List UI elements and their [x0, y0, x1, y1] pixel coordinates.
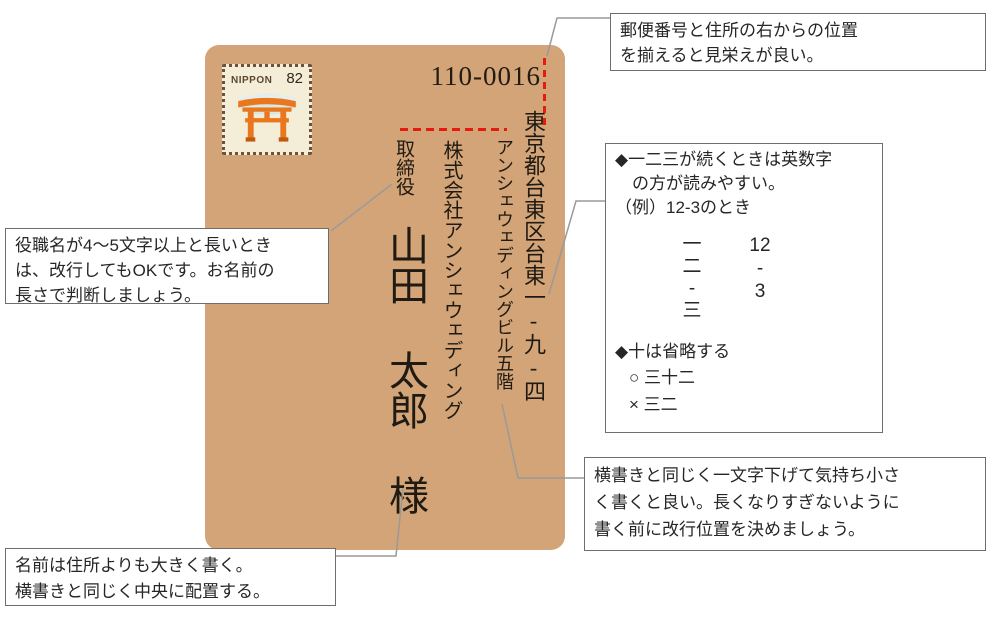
- callout-line: の方が読みやすい。: [615, 172, 873, 196]
- envelope-addressing-diagram: NIPPON 82 110-0016 東京都台東区台東一-九-四 アンシェウェデ…: [0, 0, 1000, 618]
- callout-line: 郵便番号と住所の右からの位置: [620, 18, 976, 43]
- arabic-digit: 12: [749, 234, 770, 257]
- callout-job-title-note: 役職名が4～5文字以上と長いとき は、改行してもOKです。お名前の 長さで判断し…: [5, 228, 329, 304]
- callout-postal-align: 郵便番号と住所の右からの位置 を揃えると見栄えが良い。: [610, 13, 986, 71]
- callout-line: ◆十は省略する: [615, 340, 873, 364]
- callout-line: を揃えると見栄えが良い。: [620, 43, 976, 68]
- kanji-digit: 一: [682, 234, 701, 256]
- callout-line: 長さで判断しましょう。: [15, 283, 319, 308]
- kanji-digit: 二: [682, 256, 701, 278]
- callout-line: 書く前に改行位置を決めましょう。: [594, 516, 976, 543]
- callout-line: （例）12-3のとき: [615, 196, 873, 220]
- stamp: NIPPON 82: [222, 64, 312, 155]
- arabic-digit: -: [757, 257, 763, 280]
- red-guide-horizontal: [400, 128, 507, 131]
- torii-gate-icon: [235, 88, 299, 144]
- callout-line: 横書きと同じく中央に配置する。: [15, 579, 326, 605]
- bad-example-line: × 三二: [615, 391, 873, 418]
- kanji-digit: -: [689, 278, 695, 300]
- callout-line: 横書きと同じく一文字下げて気持ち小さ: [594, 462, 976, 489]
- callout-line: 名前は住所よりも大きく書く。: [15, 553, 326, 579]
- callout-line: ◆一二三が続くときは英数字: [615, 148, 873, 172]
- number-example: 一 二 - 三 12 - 3: [677, 234, 873, 322]
- stamp-header: NIPPON 82: [230, 70, 304, 87]
- company-name: 株式会社アンシェウェディング: [441, 140, 461, 420]
- callout-line: は、改行してもOKです。お名前の: [15, 258, 319, 283]
- callout-line: く書くと良い。長くなりすぎないように: [594, 489, 976, 516]
- callout-building-note: 横書きと同じく一文字下げて気持ち小さ く書くと良い。長くなりすぎないように 書く…: [584, 457, 986, 551]
- stamp-country-label: NIPPON: [231, 75, 272, 86]
- job-title: 取締役: [394, 139, 413, 196]
- good-example-line: ○ 三十二: [615, 364, 873, 391]
- callout-numerals-note: ◆一二三が続くときは英数字 の方が読みやすい。 （例）12-3のとき 一 二 -…: [605, 143, 883, 433]
- address-building: アンシェウェディングビル五階: [495, 138, 513, 390]
- kanji-digit: 三: [682, 300, 701, 322]
- arabic-digit: 3: [755, 280, 766, 303]
- arabic-number-column: 12 - 3: [745, 234, 775, 322]
- recipient-name: 山田 太郎 様: [385, 225, 425, 515]
- callout-name-note: 名前は住所よりも大きく書く。 横書きと同じく中央に配置する。: [5, 548, 336, 606]
- callout-line: 役職名が4～5文字以上と長いとき: [15, 233, 319, 258]
- postal-code: 110-0016: [431, 61, 542, 92]
- kanji-number-column: 一 二 - 三: [677, 234, 707, 322]
- address-street: 東京都台東区台東一-九-四: [522, 110, 544, 402]
- stamp-value-label: 82: [286, 70, 303, 87]
